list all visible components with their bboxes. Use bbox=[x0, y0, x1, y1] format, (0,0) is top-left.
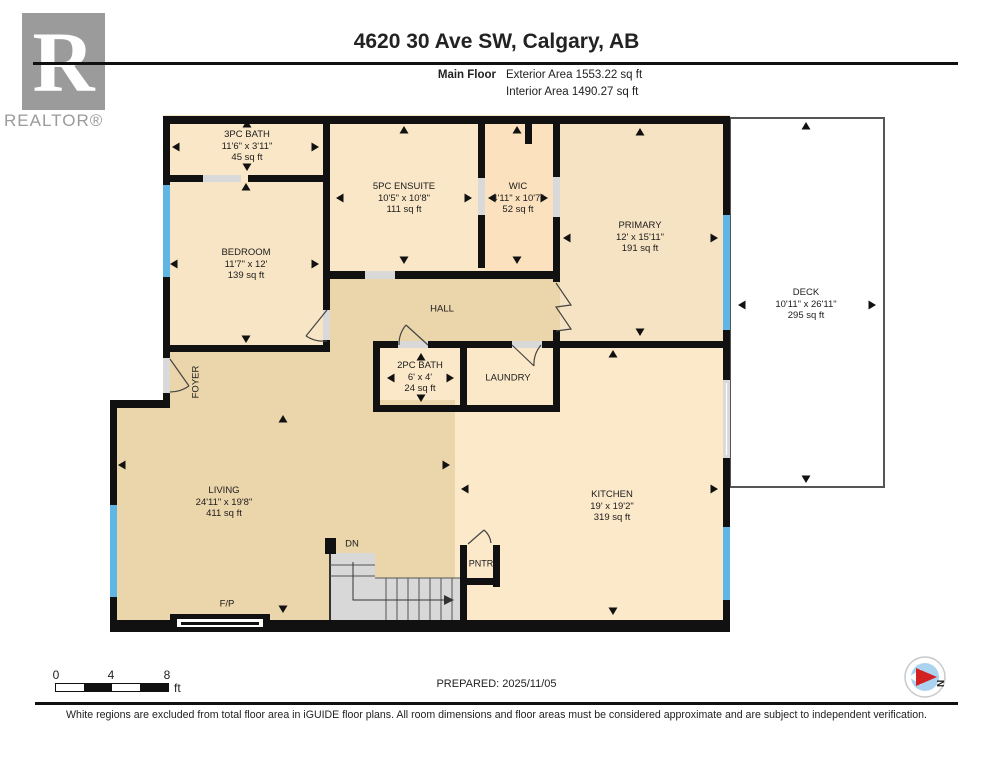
room-label-primary: PRIMARY12' x 15'11"191 sq ft bbox=[616, 220, 664, 255]
fireplace bbox=[170, 614, 270, 631]
room-label-2pc-bath: 2PC BATH6' x 4'24 sq ft bbox=[397, 360, 443, 395]
room-label-5pc-ensuite: 5PC ENSUITE10'5" x 10'8"111 sq ft bbox=[373, 181, 435, 216]
compass-north-label: N bbox=[934, 680, 945, 687]
disclaimer-text: White regions are excluded from total fl… bbox=[0, 709, 993, 721]
room-label-deck: DECK10'11" x 26'11"295 sq ft bbox=[775, 287, 836, 322]
floor-plan-page: R REALTOR® 4620 30 Ave SW, Calgary, AB M… bbox=[0, 0, 993, 768]
room-label-foyer: FOYER bbox=[190, 366, 202, 399]
fireplace-label: F/P bbox=[220, 598, 235, 610]
room-label-living: LIVING24'11" x 19'8"411 sq ft bbox=[196, 485, 253, 520]
room-label-wic: WIC4'11" x 10'7"52 sq ft bbox=[492, 181, 543, 216]
room-label-hall: HALL bbox=[430, 303, 454, 315]
footer-divider bbox=[35, 702, 958, 705]
pantry-label: PNTR bbox=[469, 558, 494, 570]
compass-icon bbox=[905, 657, 945, 697]
floor-plan-drawing bbox=[0, 0, 993, 768]
prepared-date: PREPARED: 2025/11/05 bbox=[0, 678, 993, 690]
room-label-laundry: LAUNDRY bbox=[485, 372, 530, 384]
room-label-kitchen: KITCHEN19' x 19'2"319 sq ft bbox=[590, 489, 633, 524]
room-label-3pc-bath: 3PC BATH11'6" x 3'11"45 sq ft bbox=[222, 129, 273, 164]
stairs-down-label: DN bbox=[345, 538, 359, 550]
room-label-bedroom: BEDROOM11'7" x 12'139 sq ft bbox=[221, 247, 270, 282]
